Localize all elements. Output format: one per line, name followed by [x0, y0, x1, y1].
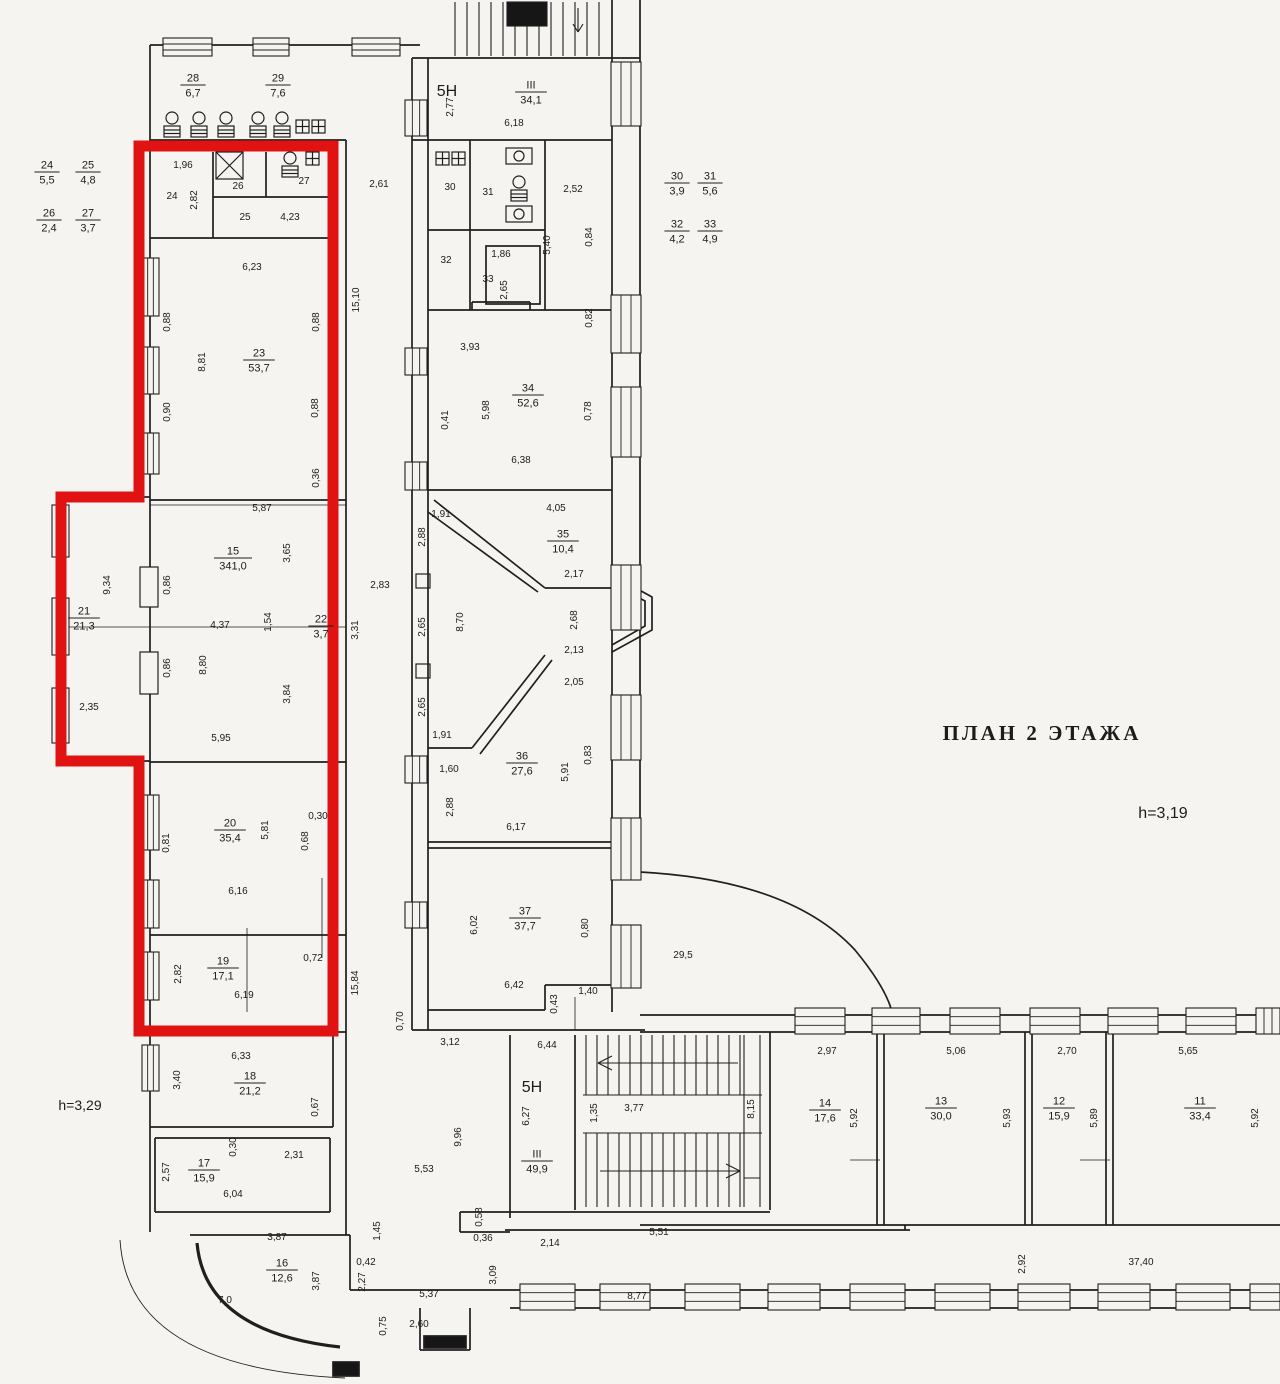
dim-label: 15,84	[350, 970, 361, 995]
dim-label: 2,13	[564, 645, 584, 656]
svg-text:28: 28	[187, 73, 199, 85]
dim-label: 2,05	[564, 677, 584, 688]
dim-label: 5,93	[1002, 1108, 1013, 1128]
dim-label: 6,02	[469, 915, 480, 935]
dim-label: 3,84	[282, 684, 293, 704]
zone-label-top: 5Н	[437, 83, 457, 100]
room-label: 254,8	[75, 160, 100, 187]
dim-label: 2,83	[370, 580, 390, 591]
dim-label: 27	[298, 176, 310, 187]
window	[1176, 1284, 1230, 1310]
svg-text:27: 27	[82, 208, 94, 220]
svg-text:12: 12	[1053, 1096, 1065, 1108]
dim-label: 32	[440, 255, 452, 266]
svg-text:34: 34	[522, 383, 534, 395]
dim-label: 0,81	[161, 833, 172, 853]
dim-label: 5,81	[260, 820, 271, 840]
room-label: 286,7	[180, 73, 205, 100]
dim-label: 1,91	[431, 509, 451, 520]
svg-text:24: 24	[41, 160, 53, 172]
window	[405, 756, 427, 783]
dim-label: 31	[482, 187, 494, 198]
room-label: 1215,9	[1043, 1096, 1075, 1123]
svg-text:4,9: 4,9	[702, 234, 717, 246]
svg-text:5,6: 5,6	[702, 186, 717, 198]
dim-label: 6,16	[228, 886, 248, 897]
room-label: 245,5	[34, 160, 59, 187]
dimension-labels: 1,96242,822627254,232,612,776,1830312,52…	[79, 97, 1261, 1336]
window	[611, 818, 641, 880]
svg-text:32: 32	[671, 219, 683, 231]
dim-label: 3,12	[440, 1037, 460, 1048]
wall-pier	[140, 567, 158, 607]
dim-label: 1,54	[263, 612, 274, 632]
vent-icon	[436, 152, 449, 165]
dim-label: 5,95	[211, 733, 231, 744]
window	[611, 925, 641, 988]
window	[142, 347, 159, 394]
dim-label: 5,91	[560, 762, 571, 782]
dim-label: 0,78	[583, 401, 594, 421]
room-label: 297,6	[265, 73, 290, 100]
dim-label: 2,60	[409, 1319, 429, 1330]
dim-label: 1,60	[439, 764, 459, 775]
dim-label: 2,35	[79, 702, 99, 713]
dim-label: 6,04	[223, 1189, 243, 1200]
shower-icon	[216, 152, 243, 179]
zone-label-bottom: 5Н	[522, 1079, 542, 1096]
toilet-icon	[191, 112, 207, 137]
dim-label: 2,17	[564, 569, 584, 580]
window	[611, 565, 641, 630]
dim-label: 2,82	[189, 190, 200, 210]
dim-label: 26	[232, 181, 244, 192]
svg-text:17: 17	[198, 1158, 210, 1170]
dim-label: 0,30	[228, 1137, 239, 1157]
svg-text:III: III	[526, 80, 535, 92]
dim-label: 4,23	[280, 212, 300, 223]
svg-text:10,4: 10,4	[552, 544, 573, 556]
svg-text:13: 13	[935, 1096, 947, 1108]
dim-label: 1,45	[372, 1221, 383, 1241]
dim-label: 5,37	[419, 1289, 439, 1300]
svg-text:12,6: 12,6	[271, 1273, 292, 1285]
vent-icon	[296, 120, 309, 133]
dim-label: 6,18	[504, 118, 524, 129]
svg-text:26: 26	[43, 208, 55, 220]
dim-label: 0,68	[300, 831, 311, 851]
svg-text:21,3: 21,3	[73, 621, 94, 633]
svg-text:25: 25	[82, 160, 94, 172]
dim-label: 4,37	[210, 620, 230, 631]
window	[685, 1284, 740, 1310]
window	[142, 433, 159, 474]
svg-text:21: 21	[78, 606, 90, 618]
svg-text:7,6: 7,6	[270, 88, 285, 100]
dim-label: 2,61	[369, 179, 389, 190]
dim-label: 3,09	[488, 1265, 499, 1285]
dim-label: 0,84	[584, 227, 595, 247]
dim-label: 2,97	[817, 1046, 837, 1057]
window	[795, 1008, 845, 1034]
window	[950, 1008, 1000, 1034]
dim-label: 2,57	[161, 1162, 172, 1182]
svg-text:14: 14	[819, 1098, 831, 1110]
room-label: 1917,1	[207, 956, 239, 983]
dim-label: 0,88	[162, 312, 173, 332]
window	[1256, 1008, 1280, 1034]
dim-label: 5,87	[252, 503, 272, 514]
window	[405, 348, 427, 375]
svg-text:III: III	[532, 1149, 541, 1161]
stair-arrow-down	[600, 1164, 740, 1178]
room-label: 2353,7	[243, 348, 275, 375]
room-label: III49,9	[521, 1149, 553, 1176]
window	[352, 38, 400, 56]
dim-label: 2,52	[563, 184, 583, 195]
dim-label: 0,42	[356, 1257, 376, 1268]
dim-label: 0,83	[583, 745, 594, 765]
window	[1250, 1284, 1280, 1310]
svg-text:30,0: 30,0	[930, 1111, 951, 1123]
dim-label: 2,14	[540, 1238, 560, 1249]
room-label: 15341,0	[214, 546, 252, 573]
window	[850, 1284, 905, 1310]
svg-text:29: 29	[272, 73, 284, 85]
dim-label: 0,36	[473, 1233, 493, 1244]
dim-label: 0,88	[311, 312, 322, 332]
dim-label: 6,23	[242, 262, 262, 273]
plan-title: ПЛАН 2 ЭТАЖА	[943, 721, 1142, 745]
window	[163, 38, 212, 56]
dim-label: 8,81	[197, 352, 208, 372]
svg-text:20: 20	[224, 818, 236, 830]
vent-icon	[306, 152, 319, 165]
window	[611, 695, 641, 760]
dim-label: 6,19	[234, 990, 254, 1001]
svg-text:2,4: 2,4	[41, 223, 56, 235]
room-label: 3510,4	[547, 529, 579, 556]
dim-label: 4,05	[546, 503, 566, 514]
svg-text:30: 30	[671, 171, 683, 183]
svg-text:33: 33	[704, 219, 716, 231]
room-label: 262,4	[36, 208, 61, 235]
room-label: 1330,0	[925, 1096, 957, 1123]
dim-label: 0,90	[162, 402, 173, 422]
dim-label: 3,93	[460, 342, 480, 353]
toilet-icon	[218, 112, 234, 137]
svg-text:34,1: 34,1	[520, 95, 541, 107]
svg-text:15: 15	[227, 546, 239, 558]
room-label: 303,9	[664, 171, 689, 198]
window	[142, 1045, 159, 1091]
stairs-main	[583, 1035, 762, 1207]
dim-label: 2,65	[417, 697, 428, 717]
height-note-left: h=3,29	[58, 1097, 101, 1113]
dim-label: 0,80	[580, 918, 591, 938]
svg-text:11: 11	[1194, 1096, 1205, 1108]
dim-label: 5,40	[542, 235, 553, 255]
svg-text:3,7: 3,7	[80, 223, 95, 235]
dim-label: 0,86	[162, 658, 173, 678]
window	[611, 295, 641, 353]
svg-text:341,0: 341,0	[219, 561, 247, 573]
dim-label: 6,33	[231, 1051, 251, 1062]
svg-text:6,7: 6,7	[185, 88, 200, 100]
dim-label: 30	[444, 182, 456, 193]
svg-text:27,6: 27,6	[511, 766, 532, 778]
svg-text:49,9: 49,9	[526, 1164, 547, 1176]
dim-label: 0,43	[549, 994, 560, 1014]
dim-label: 5,92	[1250, 1108, 1261, 1128]
dim-label: 0,30	[308, 811, 328, 822]
dim-label: 1,35	[589, 1103, 600, 1123]
room-label: 1133,4	[1184, 1096, 1216, 1123]
dim-label: 1,96	[173, 160, 193, 171]
window	[611, 387, 641, 457]
floor-plan-svg: 286,7297,6245,5254,8262,4273,7III34,1303…	[0, 0, 1280, 1384]
dim-label: 1,40	[578, 986, 598, 997]
dim-label: 6,42	[504, 980, 524, 991]
toilet-icon	[274, 112, 290, 137]
dim-label: 0,88	[310, 398, 321, 418]
room-label: 1715,9	[188, 1158, 220, 1185]
dim-label: 5,65	[1178, 1046, 1198, 1057]
window	[872, 1008, 920, 1034]
dim-label: 29,5	[673, 950, 693, 961]
svg-text:21,2: 21,2	[239, 1086, 260, 1098]
dim-label: 0,70	[395, 1011, 406, 1031]
window	[405, 462, 427, 490]
dim-label: 0,58	[474, 1207, 485, 1227]
dim-label: 0,41	[440, 410, 451, 430]
dim-label: 2,88	[417, 527, 428, 547]
dim-label: 1,86	[491, 249, 511, 260]
window	[142, 952, 159, 1000]
dim-label: 2,92	[1017, 1254, 1028, 1274]
svg-text:3,7: 3,7	[313, 629, 328, 641]
dim-label: 5,92	[849, 1108, 860, 1128]
svg-text:33,4: 33,4	[1189, 1111, 1210, 1123]
dim-label: 3,77	[624, 1103, 644, 1114]
dim-label: 9,34	[102, 575, 113, 595]
vent-icon	[312, 120, 325, 133]
svg-text:4,8: 4,8	[80, 175, 95, 187]
dim-label: 2,68	[569, 610, 580, 630]
dim-label: 25	[239, 212, 251, 223]
dim-label: 5,89	[1089, 1108, 1100, 1128]
dim-label: 8,80	[198, 655, 209, 675]
sink-icon	[506, 206, 532, 222]
svg-text:37,7: 37,7	[514, 921, 535, 933]
window	[405, 902, 427, 928]
window	[142, 258, 159, 316]
room-label: 1612,6	[266, 1258, 298, 1285]
dim-label: 5,51	[649, 1227, 669, 1238]
dim-label: 8,70	[455, 612, 466, 632]
dim-label: 5,98	[481, 400, 492, 420]
dim-label: 9,96	[453, 1127, 464, 1147]
room-label: 2121,3	[68, 606, 100, 633]
dim-label: 6,38	[511, 455, 531, 466]
room-label: 1821,2	[234, 1071, 266, 1098]
svg-text:5,5: 5,5	[39, 175, 54, 187]
dim-label: 0,82	[584, 308, 595, 328]
room-label: 1417,6	[809, 1098, 841, 1125]
dim-label: 37,40	[1128, 1257, 1153, 1268]
room-label: 2035,4	[214, 818, 246, 845]
svg-text:18: 18	[244, 1071, 256, 1083]
elevator-shaft	[507, 2, 547, 26]
svg-text:37: 37	[519, 906, 531, 918]
room-label: 3452,6	[512, 383, 544, 410]
window	[935, 1284, 990, 1310]
height-note-right: h=3,19	[1138, 805, 1187, 822]
svg-text:15,9: 15,9	[1048, 1111, 1069, 1123]
svg-text:19: 19	[217, 956, 229, 968]
toilet-icon	[250, 112, 266, 137]
window	[142, 880, 159, 928]
dim-label: 24	[166, 191, 178, 202]
dim-label: 2,31	[284, 1150, 304, 1161]
toilet-icon	[282, 152, 298, 177]
dim-label: 2,27	[357, 1272, 368, 1292]
dim-label: 0,75	[378, 1316, 389, 1336]
dim-label: 6,44	[537, 1040, 557, 1051]
svg-text:52,6: 52,6	[517, 398, 538, 410]
svg-text:17,1: 17,1	[212, 971, 233, 983]
vent-icon	[452, 152, 465, 165]
window	[1018, 1284, 1070, 1310]
window	[1186, 1008, 1236, 1034]
dim-label: 3,87	[267, 1232, 287, 1243]
dim-label: 5,06	[946, 1046, 966, 1057]
dim-label: 1,91	[432, 730, 452, 741]
room-label: 3737,7	[509, 906, 541, 933]
dim-label: 0,72	[303, 953, 323, 964]
room-label: 324,2	[664, 219, 689, 246]
window	[1098, 1284, 1150, 1310]
dim-label: 15,10	[351, 287, 362, 312]
stairs-top	[455, 2, 599, 56]
svg-text:35: 35	[557, 529, 569, 541]
dim-label: 8,77	[627, 1291, 647, 1302]
dim-label: 3,31	[350, 620, 361, 640]
svg-text:16: 16	[276, 1258, 288, 1270]
dim-label: 3,40	[172, 1070, 183, 1090]
floor-plan: 286,7297,6245,5254,8262,4273,7III34,1303…	[0, 0, 1280, 1384]
wall-pier	[140, 652, 158, 694]
svg-text:3,9: 3,9	[669, 186, 684, 198]
dim-label: 5,53	[414, 1164, 434, 1175]
svg-text:15,9: 15,9	[193, 1173, 214, 1185]
room-label: 334,9	[697, 219, 722, 246]
window	[405, 100, 427, 136]
window	[768, 1284, 820, 1310]
stair-treads	[583, 1035, 762, 1207]
room-label: 315,6	[697, 171, 722, 198]
window	[1030, 1008, 1080, 1034]
svg-text:23: 23	[253, 348, 265, 360]
dim-label: 3,65	[282, 543, 293, 563]
dim-label: 0,36	[311, 468, 322, 488]
window	[1108, 1008, 1158, 1034]
dim-label: 3,87	[311, 1271, 322, 1291]
dim-label: 33	[482, 274, 494, 285]
svg-text:35,4: 35,4	[219, 833, 240, 845]
svg-text:53,7: 53,7	[248, 363, 269, 375]
toilet-icon	[164, 112, 180, 137]
room-label: III34,1	[515, 80, 547, 107]
window	[253, 38, 289, 56]
svg-text:22: 22	[315, 614, 327, 626]
svg-text:4,2: 4,2	[669, 234, 684, 246]
room-label: 3627,6	[506, 751, 538, 778]
dim-label: 2,82	[173, 964, 184, 984]
dim-label: 8,15	[746, 1099, 757, 1119]
sink-icon	[506, 148, 532, 164]
dim-label: 2,88	[445, 797, 456, 817]
svg-text:31: 31	[704, 171, 716, 183]
toilet-icon	[511, 176, 527, 201]
room-label: 273,7	[75, 208, 100, 235]
dim-label: 0,67	[310, 1097, 321, 1117]
dim-label: 7,0	[218, 1295, 232, 1306]
dim-label: 0,86	[162, 575, 173, 595]
dim-label: 2,70	[1057, 1046, 1077, 1057]
plumbing-fixtures	[164, 112, 532, 222]
window	[142, 795, 159, 850]
dim-label: 2,65	[499, 280, 510, 300]
window	[520, 1284, 575, 1310]
dim-label: 6,27	[521, 1106, 532, 1126]
svg-text:36: 36	[516, 751, 528, 763]
svg-text:17,6: 17,6	[814, 1113, 835, 1125]
window	[611, 62, 641, 126]
dim-label: 6,17	[506, 822, 526, 833]
dim-label: 2,65	[417, 617, 428, 637]
